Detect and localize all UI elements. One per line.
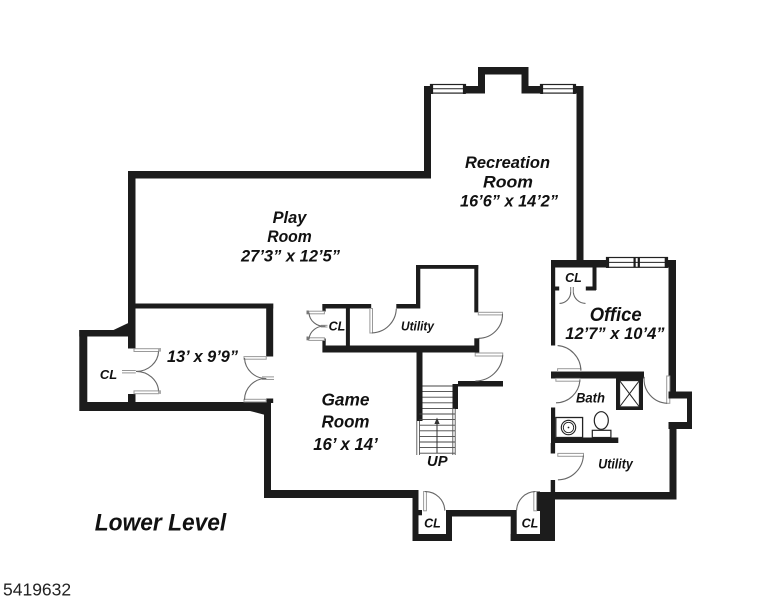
svg-text:16’ x 14’: 16’ x 14’	[313, 434, 379, 454]
svg-text:Room: Room	[267, 227, 312, 246]
svg-text:Room: Room	[322, 412, 370, 432]
svg-text:CL: CL	[329, 320, 346, 334]
svg-text:13’ x 9’9”: 13’ x 9’9”	[167, 347, 238, 366]
svg-text:16’6” x 14’2”: 16’6” x 14’2”	[460, 192, 558, 211]
svg-text:5419632: 5419632	[3, 580, 71, 600]
svg-text:Room: Room	[483, 173, 533, 192]
svg-text:Play: Play	[273, 208, 308, 227]
svg-text:27’3” x 12’5”: 27’3” x 12’5”	[240, 247, 340, 266]
svg-text:UP: UP	[427, 454, 448, 470]
svg-text:12’7” x 10’4”: 12’7” x 10’4”	[565, 324, 665, 343]
svg-text:Lower Level: Lower Level	[95, 510, 228, 537]
svg-text:Utility: Utility	[598, 457, 634, 472]
svg-text:CL: CL	[565, 271, 582, 285]
svg-text:Recreation: Recreation	[465, 153, 550, 172]
svg-text:CL: CL	[424, 517, 441, 531]
svg-text:Office: Office	[590, 305, 642, 326]
svg-text:Utility: Utility	[401, 319, 435, 334]
svg-text:CL: CL	[522, 517, 539, 531]
svg-text:Bath: Bath	[576, 391, 605, 406]
svg-text:CL: CL	[100, 367, 117, 382]
svg-text:Game: Game	[322, 390, 370, 410]
